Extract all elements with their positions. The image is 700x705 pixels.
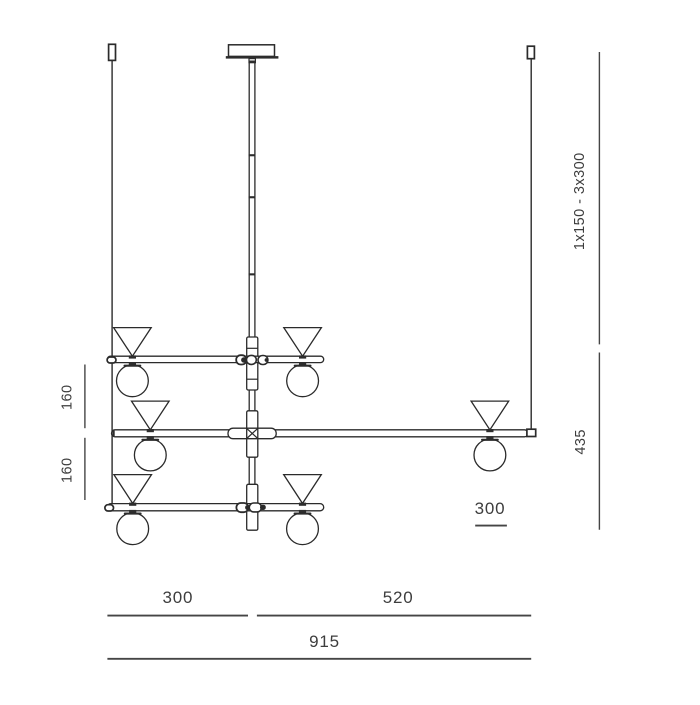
svg-text:160: 160 (60, 457, 76, 483)
svg-text:520: 520 (383, 588, 414, 607)
svg-text:300: 300 (475, 499, 506, 518)
svg-text:300: 300 (163, 588, 194, 607)
svg-text:160: 160 (60, 384, 76, 410)
svg-text:435: 435 (573, 429, 589, 455)
svg-text:915: 915 (309, 632, 340, 651)
svg-text:1x150 - 3x300: 1x150 - 3x300 (572, 152, 588, 250)
